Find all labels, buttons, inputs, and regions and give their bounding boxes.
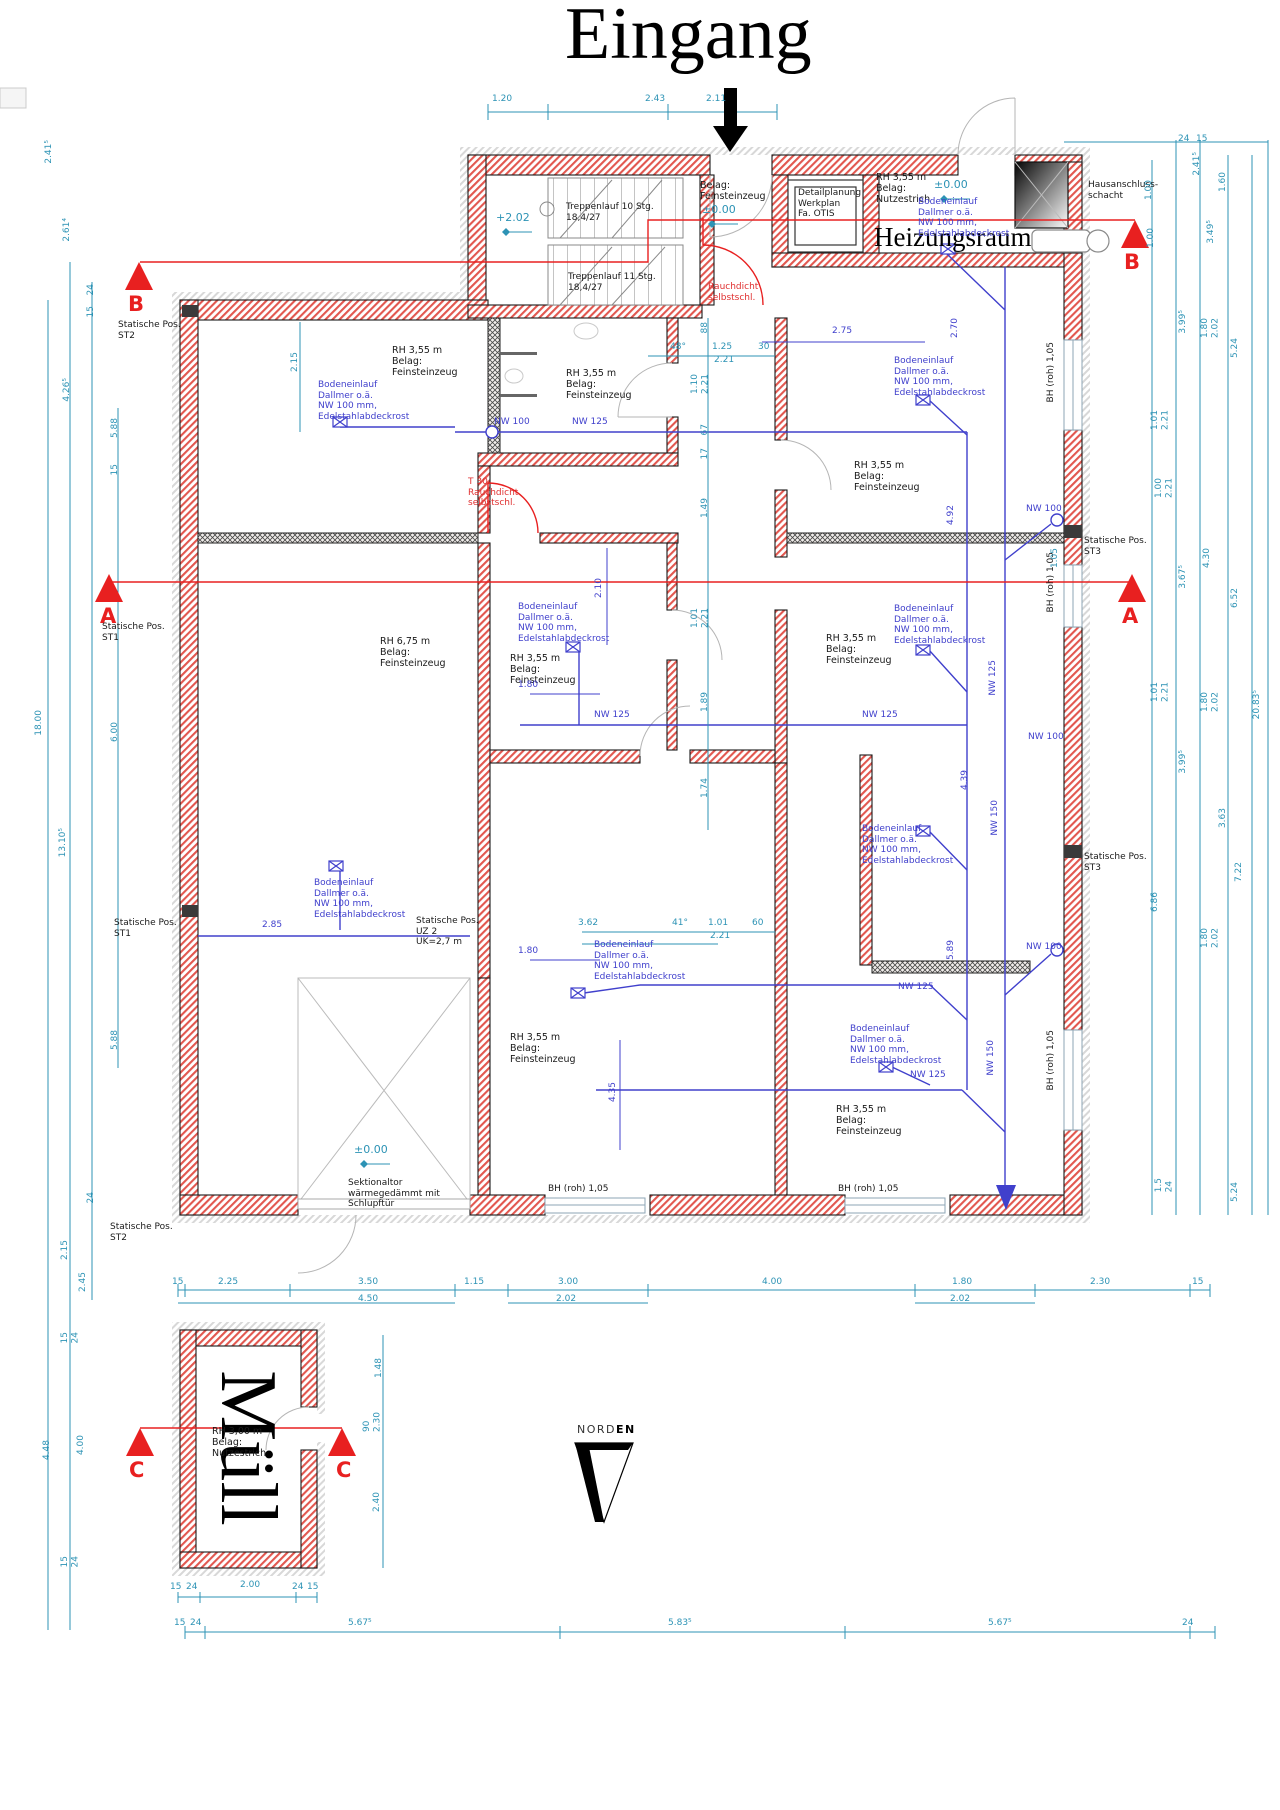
dim-label: 24 bbox=[186, 1582, 197, 1593]
page-corner-artifact bbox=[0, 88, 26, 108]
t30-door-label: T 30 Rauchdicht selbstschl. bbox=[468, 477, 518, 509]
dim-label: 88 bbox=[700, 322, 711, 333]
dim-label: 7.22 bbox=[1234, 862, 1245, 882]
drain-note: Bodeneinlauf Dallmer o.ä. NW 100 mm, Ede… bbox=[862, 824, 953, 866]
room-label: RH 3,55 m Belag: Feinsteinzeug bbox=[392, 345, 458, 379]
pipe-size-label: NW 100 bbox=[494, 417, 530, 428]
dim-label: 17 bbox=[700, 448, 711, 459]
dim-label: 41° bbox=[672, 918, 688, 929]
dim-label: 4.48 bbox=[42, 1440, 53, 1460]
north-label: NORDEN bbox=[577, 1423, 636, 1436]
north-label-nord: NORD bbox=[577, 1423, 616, 1436]
dim-label: 24 bbox=[86, 284, 97, 295]
stair-run-label: Treppenlauf 10 Stg. 18,4/27 bbox=[566, 202, 654, 223]
pipe-size-label: NW 125 bbox=[594, 710, 630, 721]
dim-label: 1.01 2.21 bbox=[1150, 410, 1171, 430]
drain-note: Bodeneinlauf Dallmer o.ä. NW 100 mm, Ede… bbox=[894, 604, 985, 646]
dim-label: 15 24 bbox=[60, 1332, 81, 1343]
dim-label: 3.49⁵ bbox=[1206, 220, 1217, 244]
sill-height-label: BH (roh) 1,05 bbox=[1046, 1030, 1057, 1090]
pipe-size-label: NW 125 bbox=[862, 710, 898, 721]
dim-label: 6.00 bbox=[110, 722, 121, 742]
dim-label: 1.48 bbox=[374, 1358, 385, 1378]
dim-label: 24 bbox=[292, 1582, 303, 1593]
dim-label: 1.15 bbox=[464, 1277, 484, 1288]
dim-label: 5.67⁵ bbox=[988, 1618, 1012, 1629]
section-label-c-right: C bbox=[336, 1458, 351, 1483]
north-label-en: EN bbox=[616, 1423, 636, 1436]
sill-height-label: BH (roh) 1,05 bbox=[838, 1184, 898, 1195]
dim-label: 3.63 bbox=[1218, 808, 1229, 828]
pipe-size-label: NW 125 bbox=[988, 660, 999, 696]
dim-label: 2.30 bbox=[1090, 1277, 1110, 1288]
dim-label: 1.80 bbox=[952, 1277, 972, 1288]
dim-label: 1.89 bbox=[700, 692, 711, 712]
dim-label: 13.10⁵ bbox=[58, 828, 69, 857]
blue-dim-label: 2.85 bbox=[262, 920, 282, 931]
dim-label: 2.15 bbox=[290, 352, 301, 372]
dim-label: 2.21 bbox=[710, 931, 730, 942]
drain-note: Bodeneinlauf Dallmer o.ä. NW 100 mm, Ede… bbox=[518, 602, 609, 644]
dim-label: 2.11 bbox=[706, 94, 726, 105]
dim-label: 2.00 bbox=[240, 1580, 260, 1591]
blue-dim-label: 4.39 bbox=[960, 770, 971, 790]
dim-label: 67 bbox=[700, 424, 711, 435]
drain-note: Bodeneinlauf Dallmer o.ä. NW 100 mm, Ede… bbox=[918, 197, 1009, 239]
drain-note: Bodeneinlauf Dallmer o.ä. NW 100 mm, Ede… bbox=[850, 1024, 941, 1066]
dim-label: 3.67⁵ bbox=[1178, 565, 1189, 589]
dim-label: 4.00 bbox=[76, 1435, 87, 1455]
blue-dim-label: 2.70 bbox=[950, 318, 961, 338]
windows bbox=[545, 340, 1082, 1213]
room-label: RH 3,00 m Belag: Nutzestrich bbox=[212, 1426, 266, 1460]
dim-label: 1.80 2.02 bbox=[1200, 928, 1221, 948]
sill-height-label: BH (roh) 1,05 bbox=[1046, 342, 1057, 402]
dim-label: 15 bbox=[307, 1582, 318, 1593]
static-position-label: Statische Pos. ST1 bbox=[102, 622, 165, 643]
dim-label: 90 2.30 bbox=[362, 1412, 383, 1432]
north-arrow-icon bbox=[575, 1443, 633, 1522]
dim-label: 3.50 bbox=[358, 1277, 378, 1288]
dim-label: 2.02 bbox=[950, 1294, 970, 1305]
dim-label: 2.61⁴ bbox=[62, 218, 73, 242]
garage-lintel-box bbox=[298, 978, 470, 1209]
dim-label: 15 bbox=[172, 1277, 183, 1288]
dim-label: 2.43 bbox=[645, 94, 665, 105]
dim-label: 24 bbox=[1178, 134, 1189, 145]
dim-label: 1.5 24 bbox=[1154, 1178, 1175, 1192]
dim-label: 1.25 bbox=[712, 342, 732, 353]
dim-label: 5.88 bbox=[110, 418, 121, 438]
blue-dim-label: 2.10 bbox=[594, 578, 605, 598]
dim-label: 1.01 2.21 bbox=[1150, 682, 1171, 702]
dim-label: 1.80 2.02 bbox=[1200, 318, 1221, 338]
dim-label: 1.01 2.21 bbox=[690, 608, 711, 628]
drain-note: Bodeneinlauf Dallmer o.ä. NW 100 mm, Ede… bbox=[314, 878, 405, 920]
chimney bbox=[1015, 162, 1068, 228]
dim-label: 4.30 bbox=[1202, 548, 1213, 568]
dim-label: 2.41⁵ bbox=[44, 140, 55, 164]
dim-label: 24 bbox=[86, 1192, 97, 1203]
dim-label: 1.60 bbox=[1218, 172, 1229, 192]
blue-dim-label: 4.35 bbox=[608, 1082, 619, 1102]
static-position-label: Statische Pos. ST2 bbox=[110, 1222, 173, 1243]
dim-label: 4.50 bbox=[358, 1294, 378, 1305]
room-label: RH 6,75 m Belag: Feinsteinzeug bbox=[380, 636, 446, 670]
dim-label: 15 bbox=[86, 306, 97, 317]
dim-label: 24 bbox=[190, 1618, 201, 1629]
dim-label: 1.01 bbox=[708, 918, 728, 929]
section-marker-triangles bbox=[95, 220, 1149, 1456]
dim-label: 5.83⁵ bbox=[668, 1618, 692, 1629]
drain-note: Bodeneinlauf Dallmer o.ä. NW 100 mm, Ede… bbox=[594, 940, 685, 982]
room-label: RH 3,55 m Belag: Feinsteinzeug bbox=[854, 460, 920, 494]
dim-label: 2.02 bbox=[556, 1294, 576, 1305]
dim-label: 60 bbox=[752, 918, 763, 929]
dim-label: 4.26⁵ bbox=[62, 378, 73, 402]
section-label-c-left: C bbox=[129, 1458, 144, 1483]
dim-label: 30 bbox=[758, 342, 769, 353]
pipe-size-label: NW 150 bbox=[990, 800, 1001, 836]
room-label: RH 3,55 m Belag: Feinsteinzeug bbox=[510, 1032, 576, 1066]
blue-dim-label: 4.92 bbox=[946, 505, 957, 525]
sill-height-label: BH (roh) 1,05 bbox=[548, 1184, 608, 1195]
sectional-door-label: Sektionaltor wärmegedämmt mit Schlupftür bbox=[348, 1178, 440, 1210]
pipe-size-label: NW 125 bbox=[898, 982, 934, 993]
blue-dim-label: 1.80 bbox=[518, 946, 538, 957]
dim-label: 15 bbox=[174, 1618, 185, 1629]
dim-label: 1.74 bbox=[700, 778, 711, 798]
dim-label: 3.99⁵ bbox=[1178, 750, 1189, 774]
dim-label: 2.45 bbox=[78, 1272, 89, 1292]
static-position-label: Statische Pos. ST3 bbox=[1084, 852, 1147, 873]
dim-label: 3.62 bbox=[578, 918, 598, 929]
dim-label: 24 bbox=[1182, 1618, 1193, 1629]
dim-label: 5.24 bbox=[1230, 1182, 1241, 1202]
dim-label: 15 bbox=[170, 1582, 181, 1593]
dim-label: 5.88 bbox=[110, 1030, 121, 1050]
dim-label: 2.25 bbox=[218, 1277, 238, 1288]
dim-label: 3.99⁵ bbox=[1178, 310, 1189, 334]
dim-label: 1.10 2.21 bbox=[690, 374, 711, 394]
dim-label: 1.00 bbox=[1146, 228, 1157, 248]
dim-label: 1.80 2.02 bbox=[1200, 692, 1221, 712]
section-label-b-right: B bbox=[1124, 250, 1140, 275]
floor-plan-canvas: Eingang Heizungsraum Müll NORDEN B B A A… bbox=[0, 0, 1280, 1810]
dim-label: 15 bbox=[110, 464, 121, 475]
dim-label: 6.86 bbox=[1150, 892, 1161, 912]
drain-note: Bodeneinlauf Dallmer o.ä. NW 100 mm, Ede… bbox=[894, 356, 985, 398]
drain-note: Bodeneinlauf Dallmer o.ä. NW 100 mm, Ede… bbox=[318, 380, 409, 422]
dim-label: 5.24 bbox=[1230, 338, 1241, 358]
dim-label: 15 bbox=[1196, 134, 1207, 145]
stair-run-label: Treppenlauf 11 Stg. 18,4/27 bbox=[568, 272, 656, 293]
dim-label: 1.05 bbox=[1050, 548, 1061, 568]
dim-label: 18.00 bbox=[34, 710, 45, 736]
static-position-label: Statische Pos. ST1 bbox=[114, 918, 177, 939]
blue-dim-label: 1.80 bbox=[518, 680, 538, 691]
dim-label: 3.00 bbox=[558, 1277, 578, 1288]
pipe-size-label: NW 150 bbox=[986, 1040, 997, 1076]
dim-label: 5.67⁵ bbox=[348, 1618, 372, 1629]
dim-label: 20.83⁵ bbox=[1252, 690, 1263, 719]
page-title: Eingang bbox=[565, 0, 812, 77]
dim-label: 2.41⁵ bbox=[1192, 152, 1203, 176]
house-connection-shaft bbox=[1032, 230, 1109, 252]
level-marker: ±0.00 bbox=[702, 204, 736, 217]
room-label: RH 3,55 m Belag: Feinsteinzeug bbox=[836, 1104, 902, 1138]
pipe-size-label: NW 100 bbox=[1026, 504, 1062, 515]
level-marker: ±0.00 bbox=[354, 1144, 388, 1157]
section-label-a-right: A bbox=[1122, 604, 1138, 629]
dim-label: 2.21 bbox=[714, 355, 734, 366]
pipe-size-label: NW 125 bbox=[910, 1070, 946, 1081]
dim-label: 2.15 bbox=[60, 1240, 71, 1260]
static-position-label: Statische Pos. ST3 bbox=[1084, 536, 1147, 557]
room-label: RH 3,55 m Belag: Feinsteinzeug bbox=[826, 633, 892, 667]
blue-dim-label: 2.75 bbox=[832, 326, 852, 337]
dim-label: 1.49 bbox=[700, 498, 711, 518]
dim-label: 6.52 bbox=[1230, 588, 1241, 608]
static-position-label: Statische Pos. ST2 bbox=[118, 320, 181, 341]
dim-label: 1.00 2.21 bbox=[1154, 478, 1175, 498]
static-position-label: Statische Pos. UZ 2 UK=2,7 m bbox=[416, 916, 479, 948]
level-marker: ±0.00 bbox=[934, 179, 968, 192]
entry-floor-label: Belag: Feinsteinzeug bbox=[700, 180, 766, 202]
pipe-size-label: NW 100 bbox=[1026, 942, 1062, 953]
elevator-note: Detailplanung Werkplan Fa. OTIS bbox=[798, 188, 861, 220]
dim-label: 15 bbox=[1192, 1277, 1203, 1288]
smoke-door-label: Rauchdicht selbstschl. bbox=[708, 282, 758, 303]
level-marker: +2.02 bbox=[496, 212, 530, 225]
dim-label: 1.20 bbox=[492, 94, 512, 105]
section-label-b-left: B bbox=[128, 292, 144, 317]
dim-label: 48° bbox=[670, 342, 686, 353]
dim-label: 4.00 bbox=[762, 1277, 782, 1288]
blue-dim-label: 5.89 bbox=[946, 940, 957, 960]
dim-label: 1.00 bbox=[1144, 180, 1155, 200]
room-label: RH 3,55 m Belag: Feinsteinzeug bbox=[566, 368, 632, 402]
pipe-size-label: NW 100 bbox=[1028, 732, 1064, 743]
dim-label: 2.40 bbox=[372, 1492, 383, 1512]
pipe-size-label: NW 125 bbox=[572, 417, 608, 428]
dim-label: 15 24 bbox=[60, 1556, 81, 1567]
